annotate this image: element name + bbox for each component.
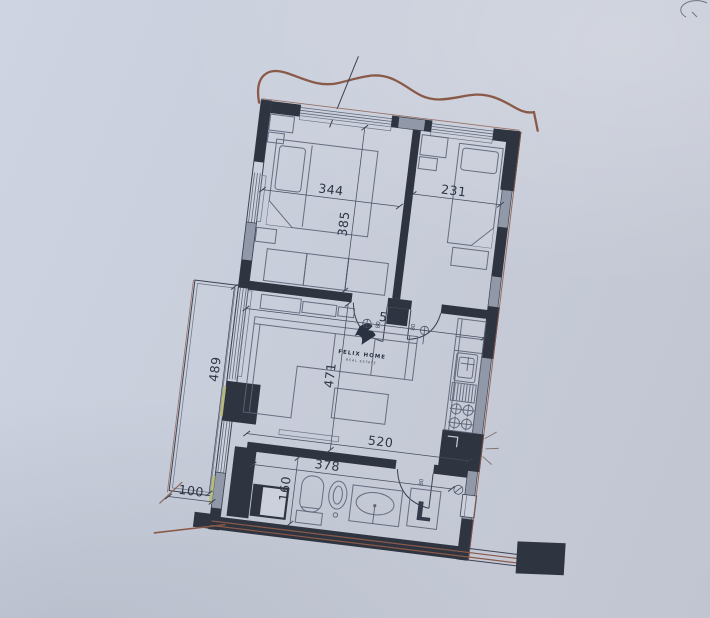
dim-label: 489 — [206, 356, 224, 383]
dim-bedroom2-width: 231 — [410, 178, 506, 208]
dim-label: 100 — [178, 482, 205, 500]
washbasin — [349, 485, 403, 527]
dresser — [451, 247, 489, 269]
kitchen-column — [438, 429, 484, 472]
corridor-column — [514, 537, 568, 579]
dim-label: 385 — [334, 210, 352, 237]
nightstand — [269, 114, 295, 133]
partition-bedrooms — [392, 130, 421, 300]
bedroom1-furniture — [251, 114, 405, 295]
nightstand — [420, 135, 448, 158]
left-wall-big-column — [222, 381, 261, 425]
pen-marks — [482, 431, 501, 466]
floor-plan: 80 80 80 — [154, 39, 624, 583]
dim-label: 160 — [276, 475, 294, 502]
dim-label: 231 — [440, 181, 467, 199]
nightstand — [255, 227, 277, 243]
left-wall-column — [254, 100, 271, 163]
dim-label: 344 — [318, 181, 345, 199]
stove-burners — [447, 402, 475, 432]
pillow — [460, 148, 498, 174]
dim-bedroom1-depth: 385 — [328, 123, 369, 294]
dim-label: 378 — [314, 456, 341, 474]
bedroom2-furniture — [407, 135, 504, 270]
floor-plan-svg: 80 80 80 — [0, 0, 710, 618]
dim-label: 471 — [321, 362, 339, 389]
stamp-fragment — [681, 1, 707, 17]
dim-bedroom1-width: 344 — [259, 173, 404, 209]
left-wall-pier — [242, 222, 257, 261]
dim-label: 520 — [367, 432, 394, 450]
niche-ledge — [279, 430, 339, 442]
dim-living-depth: 471 — [313, 299, 351, 453]
washing-machine: L — [407, 488, 441, 529]
toilet — [295, 474, 327, 525]
top-wall — [260, 99, 520, 147]
nightstand — [418, 157, 437, 171]
floor-plan-photo: 80 80 80 — [0, 0, 710, 618]
washing-machine-label: L — [413, 497, 433, 529]
logo-flag-icon — [353, 322, 376, 346]
right-wall-column — [492, 227, 508, 278]
dim-living-width: 543 — [241, 292, 489, 352]
coffee-table — [331, 388, 388, 424]
pillow — [275, 145, 306, 192]
bidet — [326, 480, 348, 518]
dim-label: 543 — [378, 309, 405, 327]
